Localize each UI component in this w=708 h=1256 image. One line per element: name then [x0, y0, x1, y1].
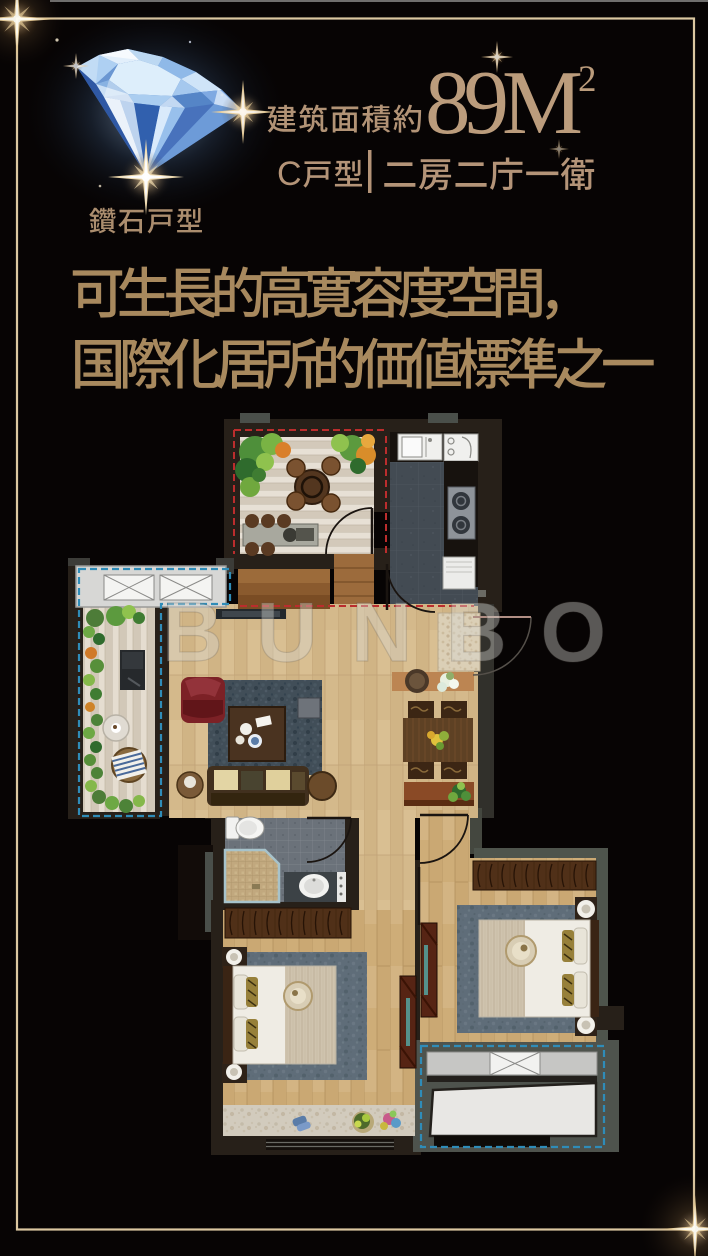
svg-text:BUNBO: BUNBO	[162, 585, 640, 679]
svg-text:2: 2	[578, 59, 597, 100]
svg-text:89M: 89M	[425, 52, 581, 153]
svg-text:C: C	[277, 155, 302, 193]
